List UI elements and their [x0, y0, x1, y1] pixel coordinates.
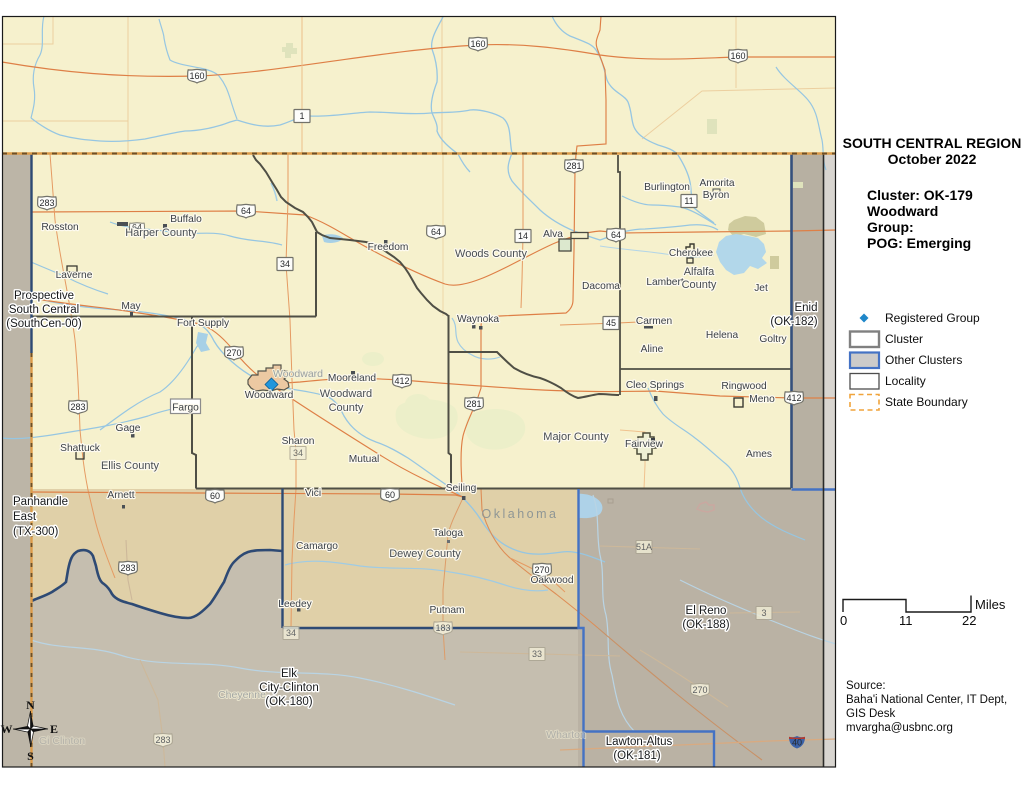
svg-text:October 2022: October 2022: [888, 151, 977, 167]
svg-text:Ringwood: Ringwood: [721, 381, 767, 392]
svg-text:Dewey County: Dewey County: [389, 548, 461, 560]
svg-text:Shattuck: Shattuck: [60, 443, 101, 454]
svg-text:Oklahoma: Oklahoma: [482, 507, 559, 521]
svg-text:Burlington: Burlington: [644, 182, 690, 193]
svg-text:64: 64: [431, 227, 441, 237]
svg-text:Fairview: Fairview: [625, 439, 664, 450]
svg-text:14: 14: [518, 231, 528, 241]
svg-text:51A: 51A: [636, 542, 652, 552]
svg-text:(OK-182): (OK-182): [770, 316, 817, 328]
svg-text:40: 40: [792, 738, 802, 748]
svg-text:34: 34: [286, 628, 296, 638]
svg-text:Mutual: Mutual: [349, 454, 380, 465]
svg-text:Fargo: Fargo: [172, 403, 199, 414]
svg-text:Ellis County: Ellis County: [101, 460, 160, 472]
svg-text:N: N: [26, 698, 35, 712]
svg-text:34: 34: [293, 448, 303, 458]
svg-text:33: 33: [532, 649, 542, 659]
svg-text:160: 160: [730, 51, 745, 61]
svg-text:(SouthCen-00): (SouthCen-00): [6, 318, 82, 330]
svg-text:East: East: [13, 511, 37, 523]
svg-text:270: 270: [692, 685, 707, 695]
svg-text:Helena: Helena: [706, 330, 739, 341]
svg-text:POG: Emerging: POG: Emerging: [867, 235, 971, 251]
svg-text:1: 1: [299, 111, 304, 121]
svg-text:Meno: Meno: [749, 394, 775, 405]
svg-text:283: 283: [39, 198, 54, 208]
svg-text:Vici: Vici: [305, 488, 321, 499]
svg-text:GIS Desk: GIS Desk: [846, 708, 895, 720]
svg-text:El Reno: El Reno: [686, 605, 727, 617]
svg-text:Dacoma: Dacoma: [582, 281, 620, 292]
svg-text:Lawton-Altus: Lawton-Altus: [606, 736, 673, 748]
svg-text:412: 412: [786, 393, 801, 403]
svg-text:Buffalo: Buffalo: [170, 214, 202, 225]
svg-text:281: 281: [466, 399, 481, 409]
svg-text:Panhandle: Panhandle: [13, 496, 68, 508]
svg-text:City-Clinton: City-Clinton: [259, 682, 318, 694]
svg-text:South Central: South Central: [9, 304, 79, 316]
svg-text:Major County: Major County: [543, 431, 609, 443]
svg-text:Lambert: Lambert: [646, 277, 684, 288]
svg-text:Elk: Elk: [281, 668, 297, 680]
svg-text:Alva: Alva: [543, 229, 563, 240]
svg-text:Fort Supply: Fort Supply: [177, 318, 230, 329]
svg-text:283: 283: [155, 735, 170, 745]
svg-text:60: 60: [385, 490, 395, 500]
svg-text:412: 412: [394, 376, 409, 386]
svg-text:11: 11: [684, 196, 693, 206]
svg-text:Harper County: Harper County: [125, 227, 197, 239]
svg-text:(OK-188): (OK-188): [682, 619, 729, 631]
svg-text:Cherokee: Cherokee: [669, 248, 714, 259]
svg-text:Wharton: Wharton: [546, 729, 586, 741]
svg-text:281: 281: [566, 161, 581, 171]
svg-text:Goltry: Goltry: [759, 334, 787, 345]
svg-text:S: S: [27, 749, 34, 763]
svg-text:Source:: Source:: [846, 680, 886, 692]
svg-text:Freedom: Freedom: [368, 242, 409, 253]
svg-text:Ames: Ames: [746, 449, 772, 460]
svg-text:County: County: [329, 402, 364, 414]
svg-text:Leedey: Leedey: [278, 599, 312, 610]
svg-text:Prospective: Prospective: [14, 290, 74, 302]
svg-text:Camargo: Camargo: [296, 541, 338, 552]
svg-text:Jet: Jet: [754, 283, 768, 294]
svg-text:11: 11: [899, 613, 913, 628]
svg-text:E: E: [50, 722, 58, 736]
svg-text:Cluster: Cluster: [885, 332, 923, 346]
svg-text:64: 64: [611, 230, 621, 240]
svg-text:270: 270: [534, 565, 549, 575]
svg-text:Miles: Miles: [975, 597, 1006, 612]
svg-text:Enid: Enid: [794, 302, 817, 314]
svg-text:Group:: Group:: [867, 219, 914, 235]
svg-text:Amorita: Amorita: [699, 178, 734, 189]
svg-text:45: 45: [606, 318, 616, 328]
svg-text:Aline: Aline: [641, 344, 664, 355]
svg-text:SOUTH CENTRAL REGION: SOUTH CENTRAL REGION: [843, 135, 1022, 151]
svg-text:Cleo Springs: Cleo Springs: [626, 380, 684, 391]
svg-text:183: 183: [435, 623, 450, 633]
svg-text:Woodward: Woodward: [320, 388, 372, 400]
svg-text:Locality: Locality: [885, 374, 926, 388]
svg-text:60: 60: [210, 491, 220, 501]
svg-text:160: 160: [470, 39, 485, 49]
svg-text:Alfalfa: Alfalfa: [684, 266, 715, 278]
svg-text:Woods County: Woods County: [455, 248, 527, 260]
svg-text:283: 283: [120, 563, 135, 573]
svg-text:County: County: [682, 279, 717, 291]
svg-text:Carmen: Carmen: [636, 316, 672, 327]
svg-text:Laverne: Laverne: [56, 270, 93, 281]
svg-text:(TX-300): (TX-300): [13, 526, 59, 538]
svg-text:Byron: Byron: [703, 190, 730, 201]
svg-text:Oakwood: Oakwood: [530, 575, 573, 586]
svg-text:270: 270: [226, 348, 241, 358]
svg-text:0: 0: [840, 613, 847, 628]
svg-text:Arnett: Arnett: [107, 490, 134, 501]
svg-text:Cluster: OK-179: Cluster: OK-179: [867, 187, 973, 203]
svg-text:Baha'i National Center, IT Dep: Baha'i National Center, IT Dept,: [846, 694, 1007, 706]
svg-text:Sharon: Sharon: [282, 436, 315, 447]
svg-text:Other Clusters: Other Clusters: [885, 353, 962, 367]
svg-text:283: 283: [70, 402, 85, 412]
svg-text:22: 22: [962, 613, 976, 628]
svg-text:Putnam: Putnam: [429, 605, 464, 616]
svg-text:34: 34: [280, 259, 290, 269]
svg-text:Mooreland: Mooreland: [328, 373, 376, 384]
svg-text:64: 64: [241, 206, 251, 216]
svg-text:Woodward: Woodward: [245, 390, 294, 401]
svg-text:Woodward: Woodward: [867, 203, 938, 219]
svg-text:3: 3: [761, 608, 766, 618]
svg-text:May: May: [121, 301, 141, 312]
svg-text:Woodward: Woodward: [273, 368, 323, 380]
svg-text:State Boundary: State Boundary: [885, 395, 968, 409]
svg-text:Rosston: Rosston: [41, 222, 78, 233]
svg-text:(OK-181): (OK-181): [613, 750, 660, 762]
svg-text:Gage: Gage: [116, 423, 141, 434]
svg-text:mvargha@usbnc.org: mvargha@usbnc.org: [846, 722, 953, 734]
svg-text:Registered Group: Registered Group: [885, 311, 980, 325]
svg-text:Waynoka: Waynoka: [457, 314, 499, 325]
svg-text:Seiling: Seiling: [446, 483, 477, 494]
svg-text:Taloga: Taloga: [433, 528, 463, 539]
svg-text:(OK-180): (OK-180): [265, 696, 312, 708]
svg-text:Gi Clinton: Gi Clinton: [39, 735, 85, 747]
svg-text:160: 160: [189, 71, 204, 81]
